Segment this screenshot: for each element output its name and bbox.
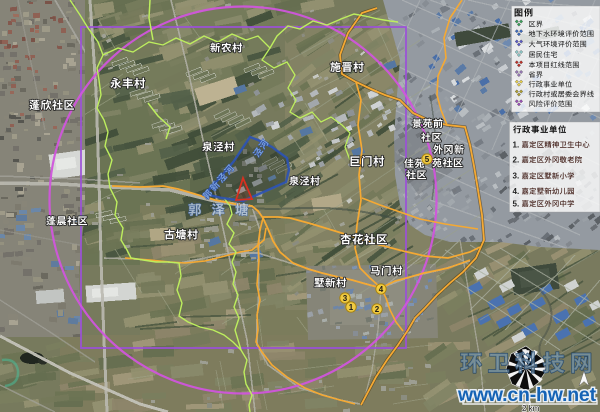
svg-text:5.: 5. [513, 199, 520, 208]
svg-text:4.: 4. [513, 187, 520, 196]
svg-text:1.: 1. [513, 140, 520, 149]
svg-text:2: 2 [375, 305, 380, 314]
svg-text:www.cn-hw.net: www.cn-hw.net [457, 384, 597, 406]
svg-text:3.: 3. [513, 172, 520, 181]
svg-text:3: 3 [343, 294, 348, 303]
svg-text:2.: 2. [513, 155, 520, 164]
svg-text:4: 4 [379, 285, 384, 294]
svg-text:2 km: 2 km [522, 404, 540, 412]
svg-text:5: 5 [425, 155, 430, 164]
svg-text:1: 1 [349, 303, 354, 312]
